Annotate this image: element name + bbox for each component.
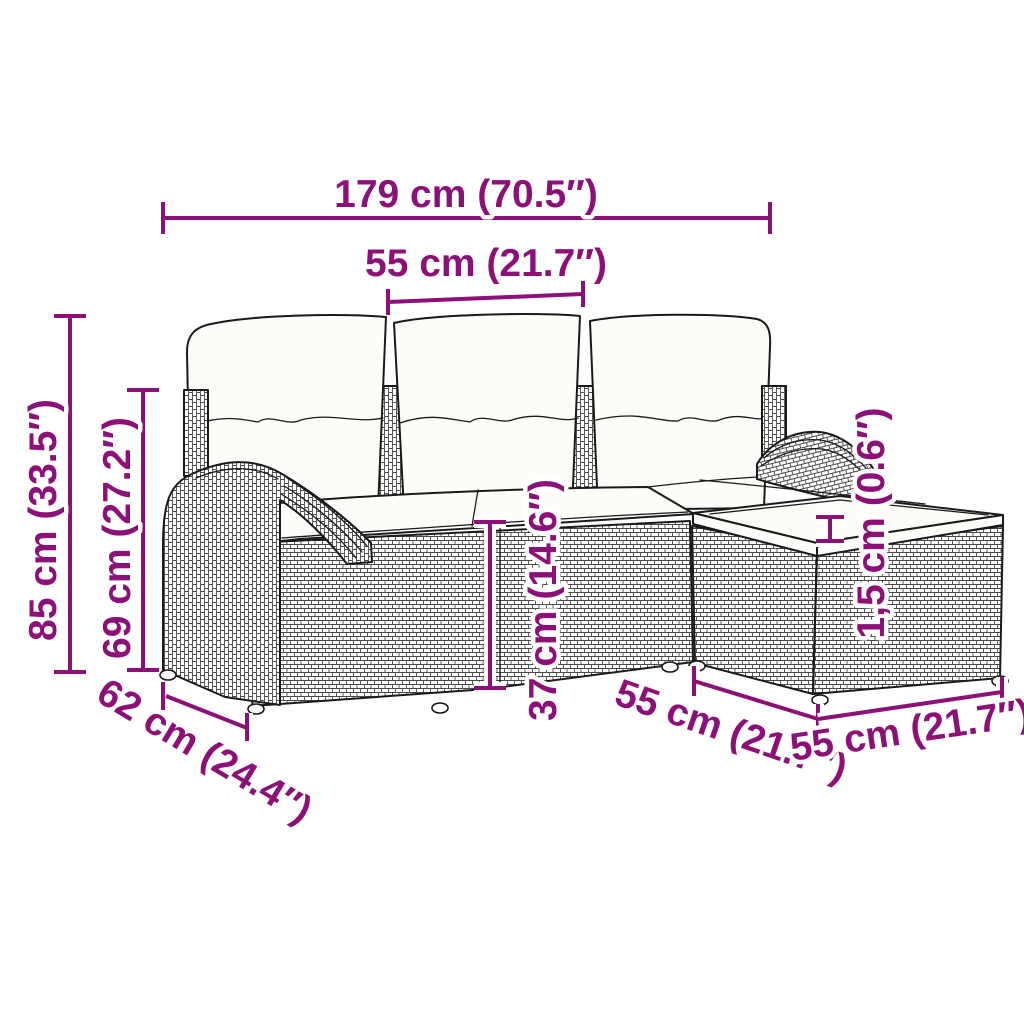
- dim-total-height-label: 85 cm (33.5″): [22, 399, 65, 641]
- sofa-dimension-drawing: 179 cm (70.5″) 55 cm (21.7″) 85 cm (33.5…: [0, 0, 1024, 1024]
- diagram-canvas: 179 cm (70.5″) 55 cm (21.7″) 85 cm (33.5…: [0, 0, 1024, 1024]
- dim-back-height-label: 69 cm (27.2″): [96, 417, 139, 659]
- dim-total-width-label: 179 cm (70.5″): [334, 173, 598, 216]
- dim-module-width-label: 55 cm (21.7″): [365, 242, 607, 285]
- dim-cushion-thickness-label: 1,5 cm (0.6″): [850, 407, 893, 638]
- dim-total-width: 179 cm (70.5″): [163, 173, 770, 234]
- dim-total-height: 85 cm (33.5″): [22, 316, 86, 672]
- back-cushion-right: [590, 315, 770, 510]
- dim-seat-height-label: 37 cm (14.6″): [522, 479, 565, 721]
- back-post-left: [184, 390, 208, 476]
- dim-module-width: 55 cm (21.7″): [365, 242, 607, 315]
- dim-back-height: 69 cm (27.2″): [96, 390, 159, 670]
